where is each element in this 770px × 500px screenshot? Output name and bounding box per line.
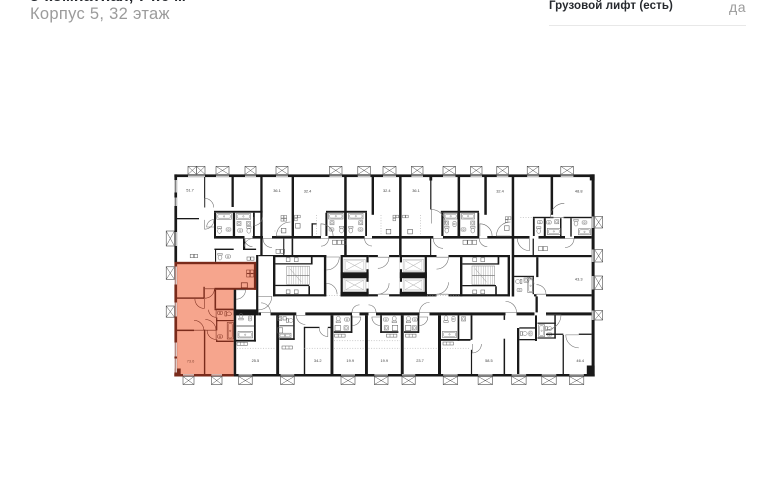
svg-text:73.6: 73.6 xyxy=(187,358,195,363)
svg-text:32.4: 32.4 xyxy=(383,188,391,193)
svg-text:19.9: 19.9 xyxy=(381,358,389,363)
svg-text:25.5: 25.5 xyxy=(252,358,260,363)
svg-text:23.7: 23.7 xyxy=(416,358,424,363)
svg-text:36.1: 36.1 xyxy=(273,188,281,193)
svg-text:32.4: 32.4 xyxy=(496,188,504,193)
svg-text:19.9: 19.9 xyxy=(346,358,354,363)
svg-text:58.5: 58.5 xyxy=(485,358,493,363)
svg-text:34.2: 34.2 xyxy=(314,358,322,363)
svg-text:46.4: 46.4 xyxy=(576,358,584,363)
svg-text:32.4: 32.4 xyxy=(304,188,312,193)
svg-text:48.8: 48.8 xyxy=(575,188,583,193)
svg-text:43.3: 43.3 xyxy=(575,277,583,282)
svg-text:51.7: 51.7 xyxy=(186,187,194,192)
svg-text:36.1: 36.1 xyxy=(412,188,420,193)
